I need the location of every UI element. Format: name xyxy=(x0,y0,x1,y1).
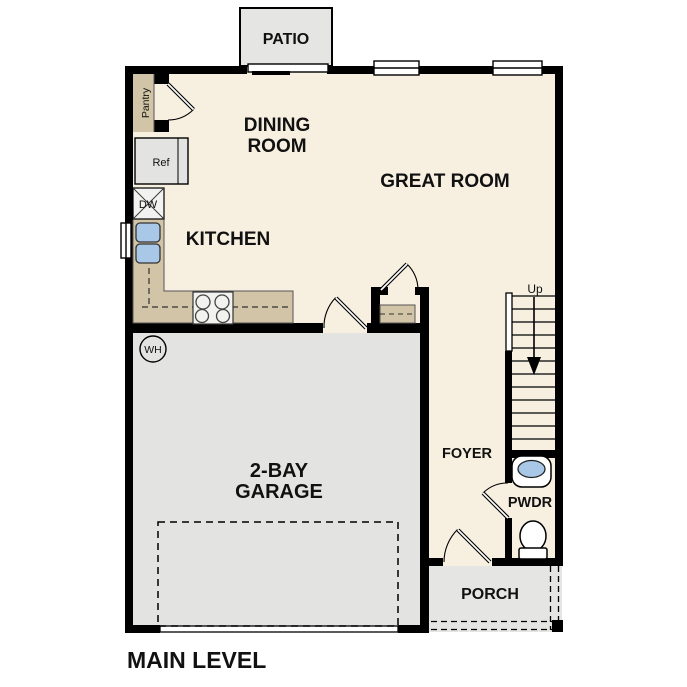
foyer-label: FOYER xyxy=(442,446,492,462)
wall-segment xyxy=(153,120,169,132)
dining-label-2: ROOM xyxy=(247,136,306,157)
porch-label: PORCH xyxy=(461,586,519,603)
kitchen-sink-bowl xyxy=(136,244,160,263)
dining-label-1: DINING xyxy=(244,115,311,136)
page-title: MAIN LEVEL xyxy=(127,647,266,673)
wall-segment xyxy=(367,323,429,333)
wall-segment xyxy=(505,458,512,483)
sliding-door-icon xyxy=(248,64,328,72)
porch-post xyxy=(552,620,563,632)
wall-segment xyxy=(398,625,429,633)
water-heater-label: WH xyxy=(144,344,162,356)
floor-plan-page: PATIO DINING ROOM GREAT ROOM KITCHEN 2-B… xyxy=(0,0,687,687)
wall-segment xyxy=(153,74,169,84)
wall-segment xyxy=(420,287,429,633)
garage-door-icon xyxy=(160,626,398,632)
kitchen-label: KITCHEN xyxy=(186,229,270,250)
garage-label-2: GARAGE xyxy=(235,481,323,503)
floor-plan-drawing: PATIO DINING ROOM GREAT ROOM KITCHEN 2-B… xyxy=(0,0,687,687)
stairs-up-label: Up xyxy=(527,282,543,296)
wall-segment xyxy=(415,287,429,295)
sliding-door-panel xyxy=(252,71,290,75)
wall-segment xyxy=(505,351,512,458)
garage-label-1: 2-BAY xyxy=(250,460,309,482)
wall-segment xyxy=(125,625,160,633)
toilet-bowl-icon xyxy=(520,521,546,551)
wall-segment xyxy=(420,558,443,566)
pantry-label: Pantry xyxy=(140,87,152,118)
kitchen-sink-bowl xyxy=(136,223,160,242)
sink-basin xyxy=(518,461,545,478)
wall-segment xyxy=(505,518,512,562)
dishwasher-label: DW xyxy=(139,199,158,211)
refrigerator-label: Ref xyxy=(152,157,170,169)
wall-segment xyxy=(555,66,563,566)
wall-segment xyxy=(125,66,247,74)
powder-label: PWDR xyxy=(508,495,553,511)
great-room-label: GREAT ROOM xyxy=(380,171,509,192)
toilet-tank-icon xyxy=(519,548,547,559)
wall-segment xyxy=(125,66,133,633)
stair-railing xyxy=(506,293,512,351)
patio-label: PATIO xyxy=(263,31,310,48)
